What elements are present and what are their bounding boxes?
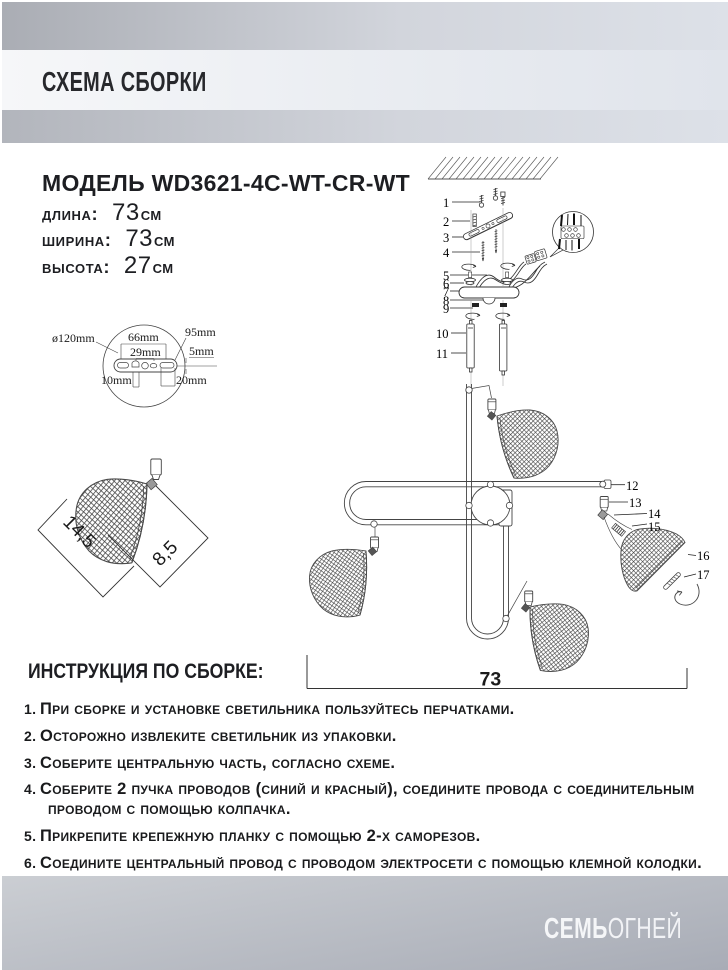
svg-text:10: 10 bbox=[436, 327, 449, 341]
svg-text:11: 11 bbox=[436, 347, 448, 361]
svg-text:5mm: 5mm bbox=[189, 344, 214, 358]
svg-text:4: 4 bbox=[443, 246, 450, 260]
svg-text:95mm: 95mm bbox=[185, 325, 216, 339]
svg-text:2: 2 bbox=[443, 215, 449, 229]
svg-text:13: 13 bbox=[629, 496, 642, 510]
svg-text:1: 1 bbox=[443, 196, 449, 210]
svg-text:8,5: 8,5 bbox=[149, 537, 183, 571]
svg-text:17: 17 bbox=[697, 568, 710, 582]
svg-text:10mm: 10mm bbox=[101, 373, 132, 387]
svg-text:15: 15 bbox=[648, 520, 661, 534]
svg-text:14: 14 bbox=[648, 507, 661, 521]
svg-text:9: 9 bbox=[443, 302, 449, 316]
svg-text:3: 3 bbox=[443, 231, 449, 245]
svg-text:29mm: 29mm bbox=[130, 345, 161, 359]
svg-text:ø120mm: ø120mm bbox=[52, 331, 95, 345]
svg-text:73: 73 bbox=[480, 669, 502, 691]
svg-text:66mm: 66mm bbox=[128, 330, 159, 344]
svg-text:16: 16 bbox=[697, 549, 710, 563]
svg-text:12: 12 bbox=[626, 479, 639, 493]
svg-text:20mm: 20mm bbox=[176, 373, 207, 387]
